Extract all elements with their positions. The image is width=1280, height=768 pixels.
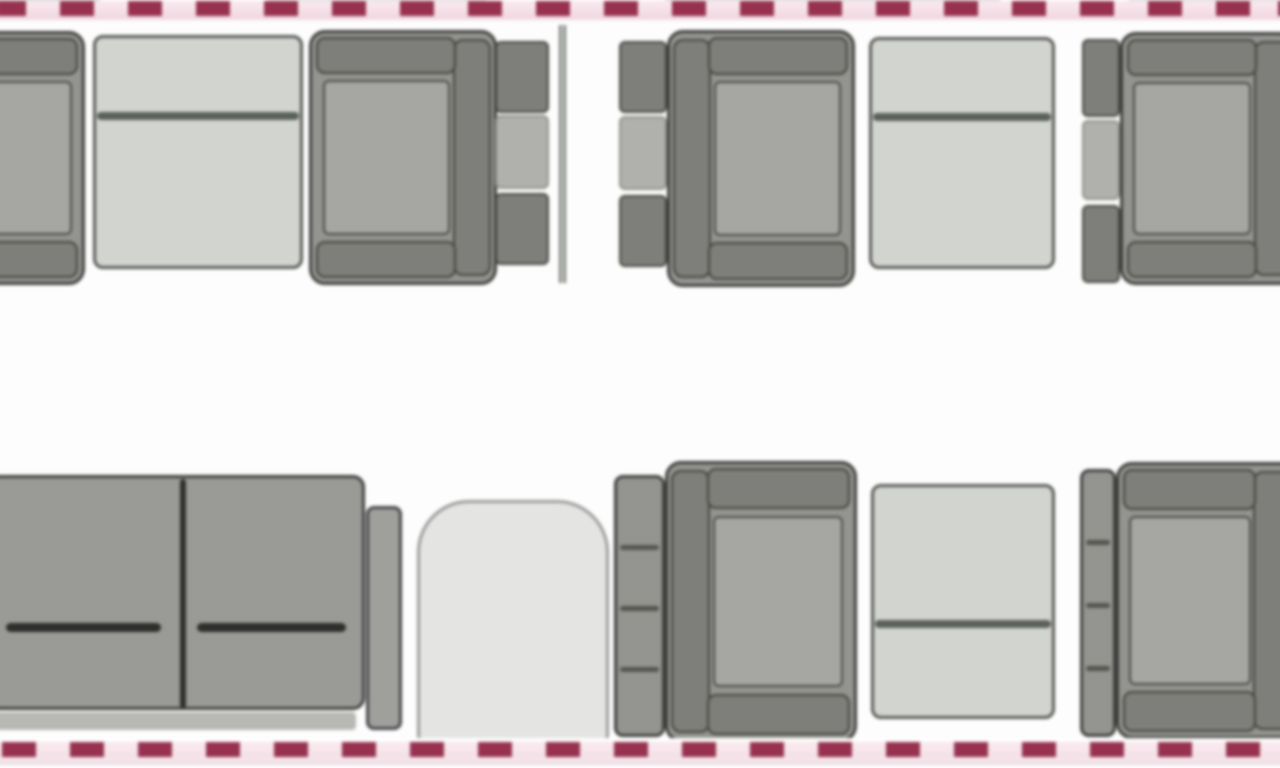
cabin-floorplan: [0, 0, 1280, 768]
seat-cushion: [0, 81, 72, 235]
console-block-middle: [495, 115, 549, 189]
console-block-top: [619, 41, 667, 113]
console-block-bottom: [1082, 205, 1120, 283]
seat-backrest: [671, 470, 710, 733]
console-block-middle: [1082, 120, 1120, 201]
club-seat-2: [309, 30, 497, 285]
ottoman-seam: [620, 606, 659, 611]
ottoman-2: [1080, 469, 1116, 737]
seat-armrest-bottom: [1127, 241, 1257, 278]
seat-armrest-bottom: [0, 241, 78, 278]
club-seat-5: [665, 461, 857, 742]
divan-cushion-front-left: [6, 623, 162, 632]
seat-armrest-bottom: [1123, 691, 1256, 732]
divan-cushion-front-right: [197, 623, 346, 632]
side-console-1: [495, 41, 549, 265]
cabin-divider: [559, 25, 566, 283]
seat-armrest-top: [1127, 39, 1257, 76]
console-block-top: [1082, 39, 1120, 117]
seat-backrest: [673, 39, 711, 278]
club-seat-4-partial: [1120, 32, 1280, 285]
divan-center-seam: [180, 479, 186, 708]
cabinet: [417, 500, 609, 745]
table-2: [869, 37, 1055, 269]
seat-cushion: [714, 81, 841, 237]
seat-cushion: [323, 80, 450, 234]
side-console-3: [1082, 39, 1120, 283]
seat-armrest-top: [0, 38, 78, 75]
divan-armrest: [366, 506, 402, 730]
table-divider-line: [97, 112, 299, 120]
seat-armrest-bottom: [708, 242, 848, 280]
table-divider-line: [875, 620, 1051, 628]
table-3: [871, 484, 1055, 719]
seat-armrest-top: [708, 37, 848, 75]
wall-dashed-line-bottom: [0, 742, 1280, 757]
divan-base-shadow: [0, 712, 356, 730]
ottoman-seam: [620, 545, 659, 550]
ottoman-seam: [1086, 540, 1110, 545]
seat-armrest-top: [316, 37, 456, 74]
divan-sofa: [0, 475, 402, 735]
seat-backrest: [1253, 471, 1280, 730]
ottoman-seam: [1086, 603, 1110, 608]
club-seat-1-partial: [0, 31, 85, 285]
ottoman-seam: [1086, 666, 1110, 671]
fuselage-wall-top: [0, 0, 1280, 20]
seat-backrest: [453, 39, 491, 276]
seat-cushion: [713, 516, 843, 687]
ottoman-1: [614, 475, 665, 737]
table-divider-line: [873, 113, 1051, 121]
side-console-2: [619, 41, 667, 267]
seat-cushion: [1129, 516, 1251, 684]
console-block-middle: [619, 116, 667, 191]
club-seat-6-partial: [1116, 462, 1280, 739]
seat-armrest-top: [707, 468, 850, 509]
console-block-bottom: [495, 193, 549, 265]
console-block-bottom: [619, 195, 667, 267]
seat-armrest-bottom: [707, 694, 850, 735]
seat-backrest: [1254, 41, 1280, 276]
seat-cushion: [1133, 82, 1251, 235]
table-1: [93, 35, 303, 269]
wall-dashed-line-top: [0, 1, 1280, 16]
console-block-top: [495, 41, 549, 113]
ottoman-seam: [620, 667, 659, 672]
floorplan-scene: [0, 0, 1280, 768]
seat-armrest-top: [1123, 469, 1256, 510]
club-seat-3: [667, 30, 855, 287]
seat-armrest-bottom: [316, 241, 456, 278]
fuselage-wall-bottom: [0, 738, 1280, 765]
